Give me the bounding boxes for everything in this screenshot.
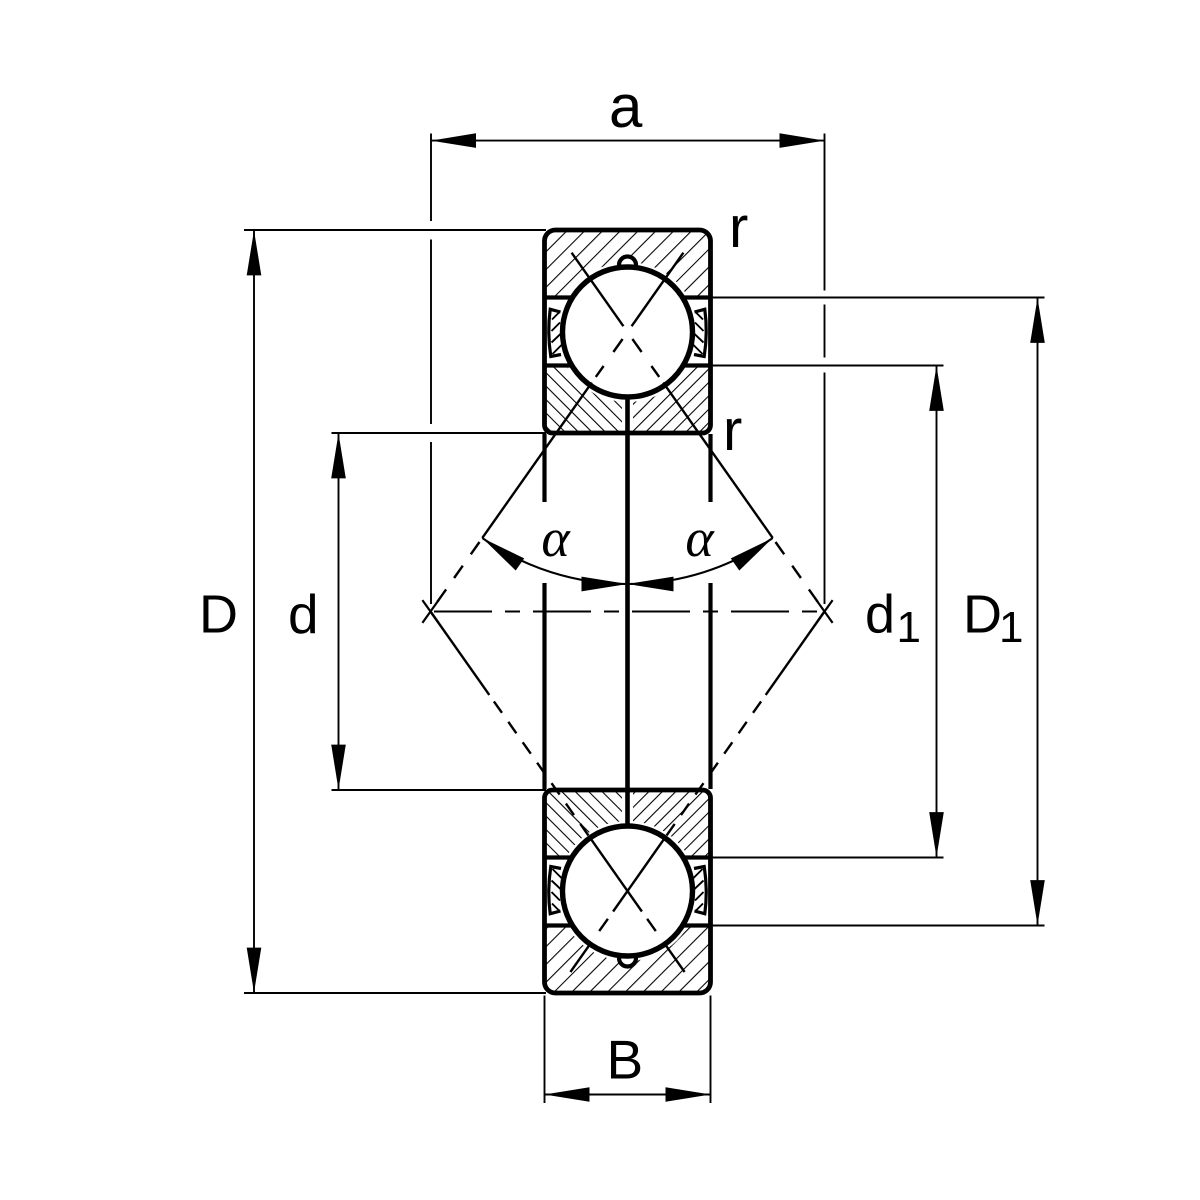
svg-text:α: α [685,508,715,568]
svg-text:D: D [199,585,238,645]
svg-text:r: r [723,398,742,463]
svg-text:B: B [607,1029,644,1091]
svg-text:r: r [729,195,748,260]
svg-text:D: D [963,585,1002,645]
svg-text:a: a [609,73,643,140]
svg-text:d: d [865,585,895,645]
svg-text:1: 1 [897,603,921,652]
svg-text:1: 1 [999,603,1023,652]
svg-text:α: α [541,508,571,568]
svg-text:d: d [288,583,319,645]
